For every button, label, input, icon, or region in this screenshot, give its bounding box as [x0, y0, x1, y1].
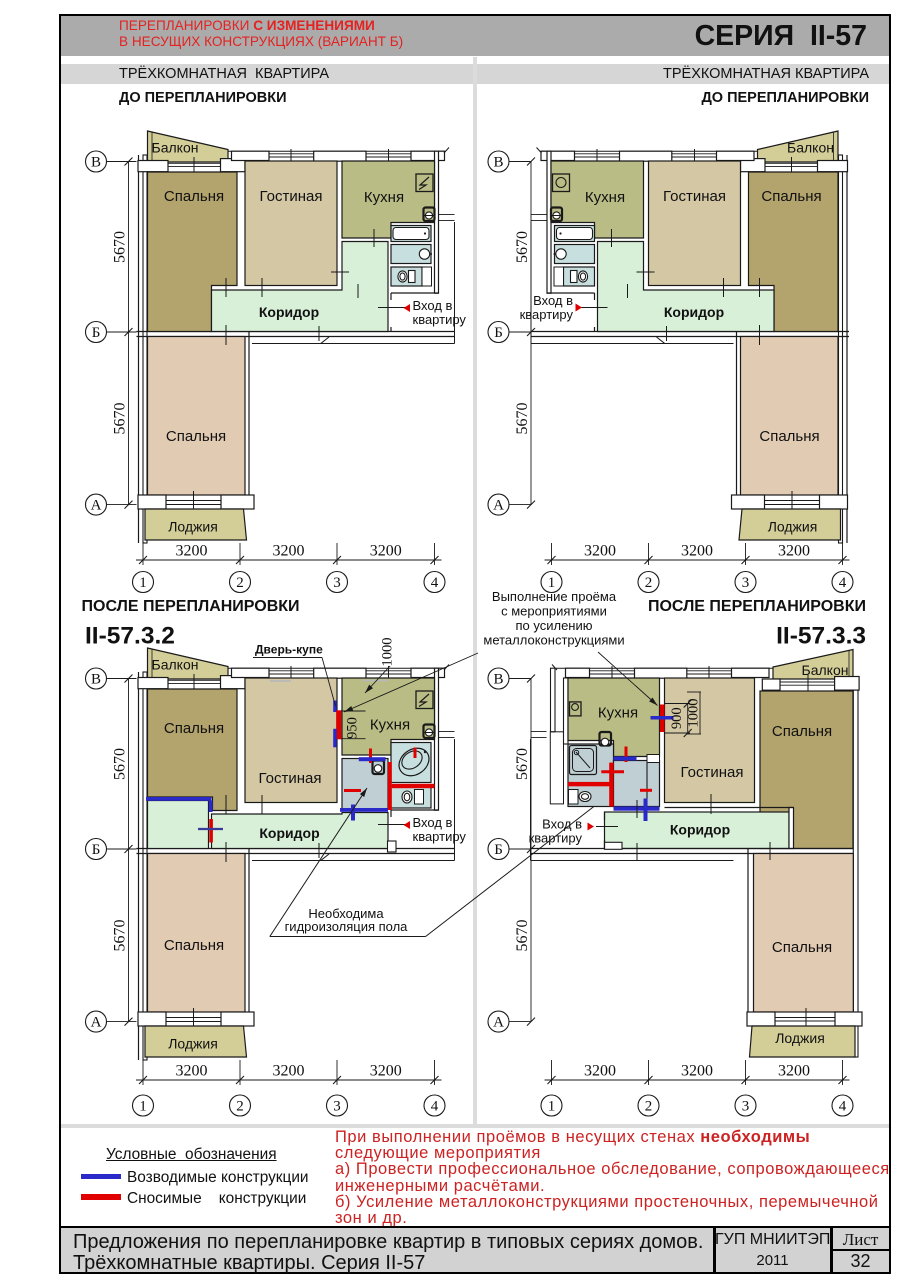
svg-text:3200: 3200	[176, 543, 208, 560]
svg-text:Выполнение проёма: Выполнение проёма	[492, 589, 617, 604]
svg-text:Спальня: Спальня	[164, 720, 224, 737]
svg-text:2: 2	[645, 1099, 653, 1115]
svg-text:5670: 5670	[112, 231, 129, 263]
svg-text:Балкон: Балкон	[802, 662, 849, 678]
svg-text:Спальня: Спальня	[759, 428, 819, 445]
svg-text:Б: Б	[494, 325, 503, 341]
svg-text:Б: Б	[92, 842, 101, 858]
svg-text:А: А	[493, 498, 504, 514]
svg-text:5670: 5670	[112, 920, 129, 952]
svg-text:Лоджия: Лоджия	[168, 1036, 218, 1052]
svg-text:Кухня: Кухня	[585, 189, 625, 206]
svg-text:3200: 3200	[778, 1063, 810, 1080]
svg-text:гидроизоляция пола: гидроизоляция пола	[285, 919, 409, 934]
svg-text:II-57.3.3: II-57.3.3	[776, 623, 866, 650]
svg-text:5670: 5670	[514, 920, 531, 952]
svg-text:3200: 3200	[273, 543, 305, 560]
svg-text:ПОСЛЕ ПЕРЕПЛАНИРОВКИ: ПОСЛЕ ПЕРЕПЛАНИРОВКИ	[648, 598, 866, 615]
svg-text:Гостиная: Гостиная	[663, 188, 726, 205]
svg-text:5670: 5670	[514, 231, 531, 263]
svg-text:квартиру: квартиру	[520, 307, 574, 322]
svg-text:5670: 5670	[514, 403, 531, 435]
svg-text:Кухня: Кухня	[364, 189, 404, 206]
svg-text:3200: 3200	[370, 1063, 402, 1080]
svg-text:квартиру: квартиру	[529, 831, 583, 846]
svg-text:1: 1	[139, 575, 147, 591]
svg-text:5670: 5670	[112, 403, 129, 435]
svg-text:Б: Б	[92, 325, 101, 341]
svg-text:Кухня: Кухня	[598, 705, 638, 722]
svg-text:Балкон: Балкон	[152, 140, 199, 156]
svg-text:Вход в: Вход в	[533, 293, 573, 308]
svg-text:квартиру: квартиру	[413, 829, 467, 844]
svg-text:Коридор: Коридор	[664, 304, 724, 320]
svg-text:Спальня: Спальня	[772, 939, 832, 956]
svg-text:Гостиная: Гостиная	[681, 764, 744, 781]
svg-text:3: 3	[333, 1099, 341, 1115]
svg-text:3200: 3200	[370, 543, 402, 560]
svg-text:4: 4	[431, 1099, 439, 1115]
svg-text:квартиру: квартиру	[413, 312, 467, 327]
svg-text:Кухня: Кухня	[370, 717, 410, 734]
svg-text:2: 2	[236, 575, 244, 591]
svg-text:Гостиная: Гостиная	[260, 188, 323, 205]
svg-text:5670: 5670	[112, 748, 129, 780]
svg-text:Спальня: Спальня	[164, 937, 224, 954]
svg-text:А: А	[493, 1015, 504, 1031]
svg-text:1000: 1000	[686, 699, 702, 728]
svg-text:950: 950	[345, 717, 361, 739]
svg-text:1: 1	[548, 1099, 556, 1115]
svg-text:Лоджия: Лоджия	[768, 519, 818, 535]
svg-text:В: В	[91, 155, 101, 171]
svg-text:Лоджия: Лоджия	[168, 519, 218, 535]
svg-text:4: 4	[431, 575, 439, 591]
svg-text:Б: Б	[494, 842, 503, 858]
svg-text:В: В	[493, 155, 503, 171]
svg-text:ПОСЛЕ ПЕРЕПЛАНИРОВКИ: ПОСЛЕ ПЕРЕПЛАНИРОВКИ	[82, 598, 300, 615]
svg-text:3200: 3200	[681, 543, 713, 560]
svg-text:3200: 3200	[778, 543, 810, 560]
svg-text:Вход в: Вход в	[413, 815, 453, 830]
svg-text:В: В	[91, 672, 101, 688]
svg-text:с мероприятиями: с мероприятиями	[501, 604, 607, 619]
svg-text:900: 900	[669, 707, 685, 729]
svg-text:II-57.3.2: II-57.3.2	[85, 623, 175, 650]
svg-text:Вход в: Вход в	[542, 817, 582, 832]
svg-text:3200: 3200	[176, 1063, 208, 1080]
svg-text:1: 1	[139, 1099, 147, 1115]
svg-text:2: 2	[236, 1099, 244, 1115]
svg-text:4: 4	[839, 1099, 847, 1115]
svg-text:Балкон: Балкон	[152, 657, 199, 673]
svg-text:3200: 3200	[681, 1063, 713, 1080]
svg-text:Спальня: Спальня	[166, 428, 226, 445]
svg-text:Спальня: Спальня	[761, 188, 821, 205]
svg-text:Коридор: Коридор	[259, 304, 319, 320]
svg-text:5670: 5670	[514, 748, 531, 780]
svg-text:4: 4	[839, 575, 847, 591]
svg-text:Спальня: Спальня	[164, 188, 224, 205]
svg-text:3: 3	[742, 575, 750, 591]
svg-text:1000: 1000	[380, 638, 396, 667]
svg-text:Балкон: Балкон	[787, 140, 834, 156]
svg-text:3200: 3200	[584, 543, 616, 560]
svg-text:Дверь-купе: Дверь-купе	[255, 643, 323, 657]
svg-text:Коридор: Коридор	[259, 825, 319, 841]
svg-text:3: 3	[333, 575, 341, 591]
svg-text:3200: 3200	[584, 1063, 616, 1080]
svg-text:3: 3	[742, 1099, 750, 1115]
svg-text:Коридор: Коридор	[670, 822, 730, 838]
svg-text:А: А	[91, 1015, 102, 1031]
svg-text:3200: 3200	[273, 1063, 305, 1080]
svg-text:В: В	[493, 672, 503, 688]
svg-text:Лоджия: Лоджия	[775, 1030, 825, 1046]
svg-text:металлоконструкциями: металлоконструкциями	[483, 633, 624, 648]
svg-text:Вход в: Вход в	[413, 298, 453, 313]
svg-text:А: А	[91, 498, 102, 514]
svg-text:2: 2	[645, 575, 653, 591]
svg-text:Гостиная: Гостиная	[259, 770, 322, 787]
svg-text:по усилению: по усилению	[515, 618, 592, 633]
svg-text:Спальня: Спальня	[772, 723, 832, 740]
